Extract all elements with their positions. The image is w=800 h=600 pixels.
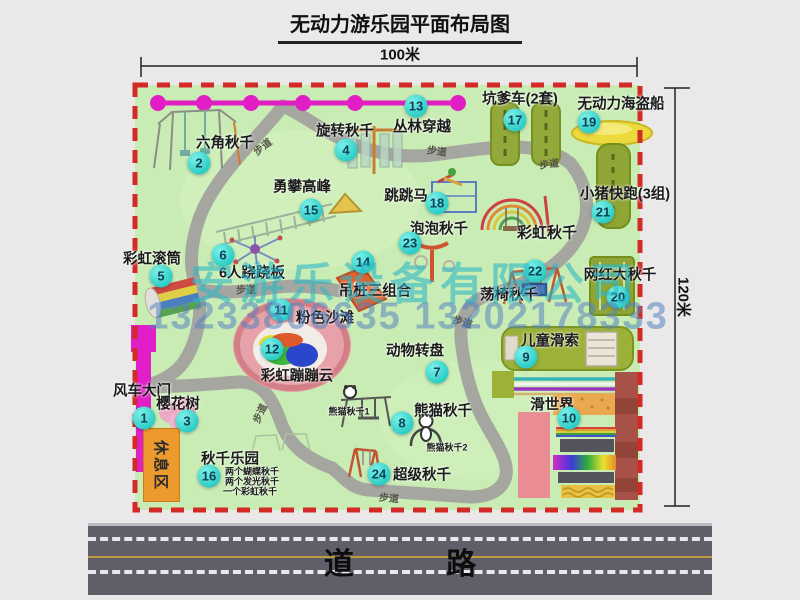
rest-area: 休息区 (143, 428, 180, 502)
rotating-swing-icon (348, 126, 402, 174)
page-title: 无动力游乐园平面布局图 (278, 8, 522, 44)
road-label: 道 路 (282, 539, 518, 583)
pig-run-track (597, 144, 630, 228)
pink-beach-icon (233, 298, 351, 392)
rest-area-label: 休息区 (151, 439, 172, 490)
screenshot-root: 无动力游乐园平面布局图 100米 120米 (0, 0, 800, 600)
zipline-area (492, 327, 633, 398)
road: 道 路 (88, 523, 712, 595)
dimension-height-label: 120米 (674, 277, 695, 317)
big-swing-structure (590, 257, 634, 315)
dimension-width-label: 100米 (380, 44, 420, 65)
